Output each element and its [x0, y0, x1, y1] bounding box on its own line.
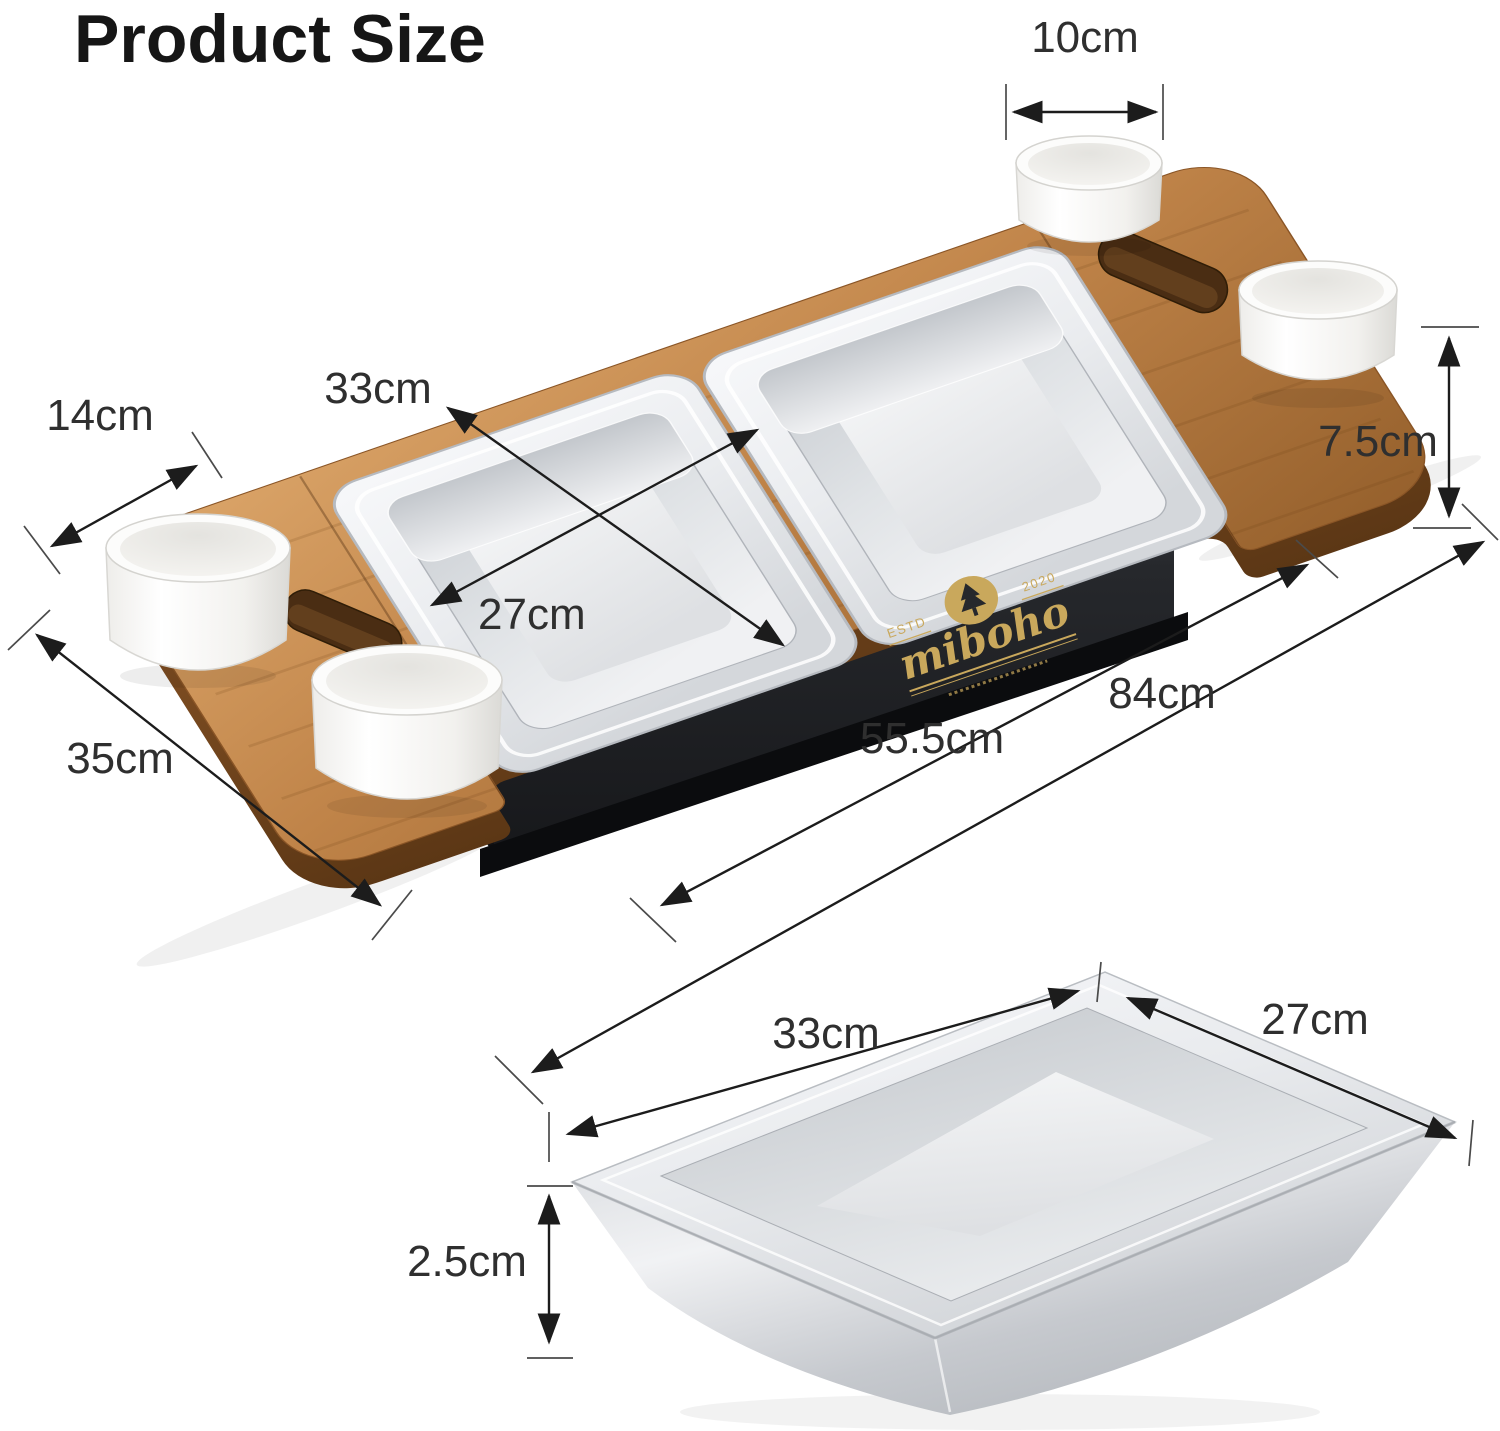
dim-label: 27cm: [1261, 995, 1369, 1044]
dim-label: 2.5cm: [407, 1237, 527, 1286]
dim-label: 35cm: [66, 734, 174, 783]
dim-label: 7.5cm: [1318, 417, 1438, 466]
dim-label: 14cm: [46, 391, 154, 440]
dim-label: 10cm: [1031, 13, 1139, 62]
product-size-figure: Product Size: [0, 0, 1500, 1431]
dim-detail-pan-depth: 2.5cm: [407, 1186, 573, 1358]
page-title: Product Size: [74, 1, 486, 77]
dim-label: 33cm: [324, 364, 432, 413]
product-size-diagram: Product Size: [0, 0, 1500, 1431]
dim-bowl-diameter: 10cm: [1006, 13, 1163, 140]
wooden-board: [85, 150, 1463, 905]
dim-label: 33cm: [772, 1009, 880, 1058]
dim-label: 55.5cm: [860, 714, 1004, 763]
dim-label: 27cm: [478, 590, 586, 639]
dim-label: 84cm: [1108, 669, 1216, 718]
